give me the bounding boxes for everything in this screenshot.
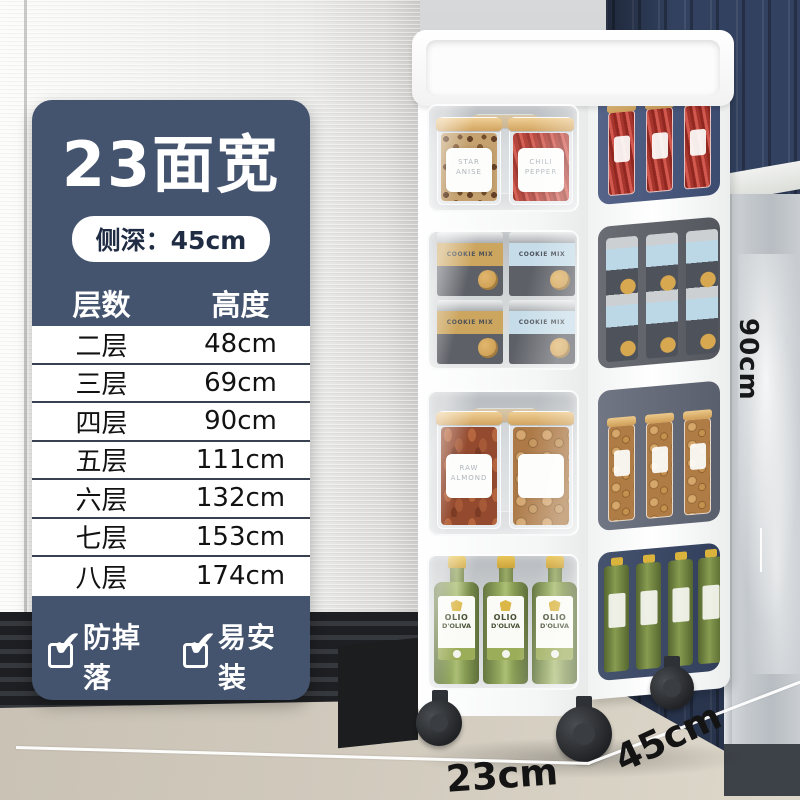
side-oil-bottle	[668, 559, 693, 667]
product-image: STAR ANISE CHILI PEPPER COOKIE MIX COOKI…	[0, 0, 800, 800]
label-line1: OLIO	[438, 613, 475, 622]
bottle-neck	[499, 568, 513, 584]
side-oil-bottle	[604, 564, 629, 672]
fridge-door-seam	[24, 0, 27, 628]
spec-panel: 23面宽 侧深：45cm 层数 高度 二层 48cm 三层 69cm 四层 90…	[32, 100, 310, 700]
label-green-band	[438, 648, 475, 660]
cell-height: 69cm	[171, 368, 310, 398]
raw-almond-jar: RAW ALMOND	[437, 411, 501, 529]
spec-table-body: 二层 48cm 三层 69cm 四层 90cm 五层 111cm 六层 132c…	[32, 326, 310, 596]
crest-icon	[451, 600, 463, 611]
bottle-cap	[497, 556, 515, 569]
star-anise-jar: STAR ANISE	[437, 117, 501, 205]
checkbox: ✔	[183, 643, 208, 668]
star-anise-contents	[441, 133, 497, 201]
can-band-cookie-art	[437, 266, 503, 296]
can-label: COOKIE MIX	[437, 311, 503, 334]
can-lid	[509, 300, 575, 311]
bottle-neck	[548, 568, 562, 584]
bamboo-lid	[508, 412, 574, 425]
bamboo-lid	[436, 118, 502, 131]
fridge-base-corner	[338, 638, 418, 748]
crest-icon	[549, 600, 561, 611]
label-line1: OLIO	[487, 613, 524, 622]
bottle-label: OLIO D'OLIVA	[536, 596, 573, 660]
drawer-tier1-spices[interactable]: STAR ANISE CHILI PEPPER	[427, 104, 579, 212]
top-tray-recess	[426, 40, 720, 96]
mixed-nut-jar	[509, 411, 573, 529]
cell-layers: 四层	[32, 403, 171, 440]
table-row: 三层 69cm	[32, 365, 310, 404]
side-window-tier2	[598, 216, 720, 369]
olive-oil-bottle: OLIO D'OLIVA	[434, 556, 479, 684]
bamboo-lid	[472, 409, 538, 422]
cell-layers: 三层	[32, 364, 171, 401]
bottle-body: OLIO D'OLIVA	[434, 582, 479, 684]
spec-table-header: 层数 高度	[32, 280, 310, 326]
side-cookie-cans	[606, 236, 638, 363]
can-label: COOKIE MIX	[509, 311, 575, 334]
drawer-tier4-olive-oil[interactable]: OLIO D'OLIVA OLIO D'OLIVA	[427, 554, 579, 690]
cart-side-panel	[588, 60, 730, 700]
drawer-tier2-cookie-mix[interactable]: COOKIE MIX COOKIE MIX COOKIE MIX COOKIE …	[427, 230, 579, 370]
header-layers: 层数	[32, 282, 171, 324]
cell-layers: 六层	[32, 480, 171, 517]
table-row: 六层 132cm	[32, 480, 310, 519]
cookie-can-stack-right: COOKIE MIX COOKIE MIX	[509, 232, 575, 364]
feature-easy-install: ✔ 易安装	[183, 616, 294, 696]
bottle-neck	[450, 568, 464, 584]
table-row: 五层 111cm	[32, 442, 310, 481]
can-lid	[509, 232, 575, 243]
can-lid	[437, 300, 503, 311]
table-row: 八层 174cm	[32, 557, 310, 596]
bottle-cap	[546, 556, 564, 569]
side-chili-jar	[608, 110, 635, 196]
caster-wheel-front-left	[416, 700, 462, 746]
cell-height: 174cm	[171, 561, 310, 591]
label-line1: OLIO	[536, 613, 573, 622]
checkbox: ✔	[48, 643, 73, 668]
bottle-label: OLIO D'OLIVA	[438, 596, 475, 660]
can-label: COOKIE MIX	[437, 243, 503, 266]
check-icon: ✔	[187, 627, 217, 663]
can-band-cookie-art	[509, 334, 575, 364]
can-lid	[437, 232, 503, 243]
cookie-can-stack-left: COOKIE MIX COOKIE MIX	[437, 232, 503, 364]
height-dimension-line	[760, 528, 762, 572]
chili-contents	[513, 133, 569, 201]
panel-title: 23面宽	[32, 134, 310, 196]
can-label: COOKIE MIX	[509, 243, 575, 266]
height-dimension-label: 90cm	[733, 318, 763, 401]
label-green-band	[536, 648, 573, 660]
cell-height: 111cm	[171, 445, 310, 475]
bottle-cap	[448, 556, 466, 569]
header-height: 高度	[171, 282, 310, 324]
side-window-tier4	[598, 542, 720, 681]
side-oil-bottle	[636, 562, 661, 670]
cell-layers: 七层	[32, 518, 171, 555]
cell-layers: 二层	[32, 326, 171, 363]
cell-layers: 五层	[32, 441, 171, 478]
drawer-tier3-nuts[interactable]: RAW ALMOND	[427, 390, 579, 536]
side-nut-jar	[608, 424, 635, 522]
label-line2: D'OLIVA	[487, 622, 524, 630]
feature-label: 防掉落	[83, 616, 159, 696]
cart-top-tray	[412, 30, 734, 106]
table-row: 二层 48cm	[32, 326, 310, 365]
cell-layers: 八层	[32, 558, 171, 595]
table-row: 四层 90cm	[32, 403, 310, 442]
label-line2: D'OLIVA	[536, 622, 573, 630]
jar-label: RAW ALMOND	[446, 454, 492, 498]
label-line2: D'OLIVA	[438, 622, 475, 630]
side-oil-bottle	[698, 556, 720, 664]
jar-label	[518, 454, 564, 498]
width-dimension-label: 23cm	[445, 750, 560, 800]
cabinet-body	[724, 194, 800, 746]
side-nut-jar	[684, 417, 711, 515]
bottle-label: OLIO D'OLIVA	[487, 596, 524, 660]
feature-label: 易安装	[218, 616, 294, 696]
cell-height: 90cm	[171, 406, 310, 436]
cell-height: 132cm	[171, 483, 310, 513]
feature-list: ✔ 防掉落 ✔ 易安装 ✔ 质量好	[32, 596, 310, 701]
caster-wheel-front-right	[556, 706, 612, 762]
olive-oil-bottle: OLIO D'OLIVA	[483, 556, 528, 684]
chili-pepper-jar: CHILI PEPPER	[509, 117, 573, 205]
side-chili-jar	[646, 107, 673, 193]
spice-jar-back	[473, 114, 537, 194]
jar-label: STAR ANISE	[446, 148, 492, 192]
cell-height: 48cm	[171, 329, 310, 359]
check-icon: ✔	[52, 627, 82, 663]
label-green-band	[487, 648, 524, 660]
side-window-tier3	[598, 380, 720, 531]
jar-label: CHILI PEPPER	[518, 148, 564, 192]
cookie-can: COOKIE MIX	[437, 300, 503, 364]
bamboo-lid	[472, 115, 538, 128]
side-chili-jar	[684, 103, 711, 189]
bottle-body: OLIO D'OLIVA	[532, 582, 577, 684]
feature-row: ✔ 防掉落 ✔ 易安装	[48, 616, 294, 696]
nut-contents	[513, 427, 569, 525]
crest-icon	[500, 600, 512, 611]
cookie-can: COOKIE MIX	[509, 232, 575, 296]
olive-oil-bottle: OLIO D'OLIVA	[532, 556, 577, 684]
depth-badge-wrap: 侧深：45cm	[32, 216, 310, 262]
side-nut-jar	[646, 421, 673, 519]
bottle-body: OLIO D'OLIVA	[483, 582, 528, 684]
cell-height: 153cm	[171, 522, 310, 552]
depth-badge: 侧深：45cm	[72, 216, 271, 262]
side-cookie-cans	[646, 232, 678, 359]
can-band-cookie-art	[437, 334, 503, 364]
bamboo-lid	[436, 412, 502, 425]
cookie-can: COOKIE MIX	[437, 232, 503, 296]
table-row: 七层 153cm	[32, 519, 310, 558]
bamboo-lid	[508, 118, 574, 131]
nut-jar-back	[473, 408, 537, 512]
side-cookie-cans	[686, 229, 718, 356]
cookie-can: COOKIE MIX	[509, 300, 575, 364]
feature-anti-fall: ✔ 防掉落	[48, 616, 159, 696]
almond-contents	[441, 427, 497, 525]
can-band-cookie-art	[509, 266, 575, 296]
